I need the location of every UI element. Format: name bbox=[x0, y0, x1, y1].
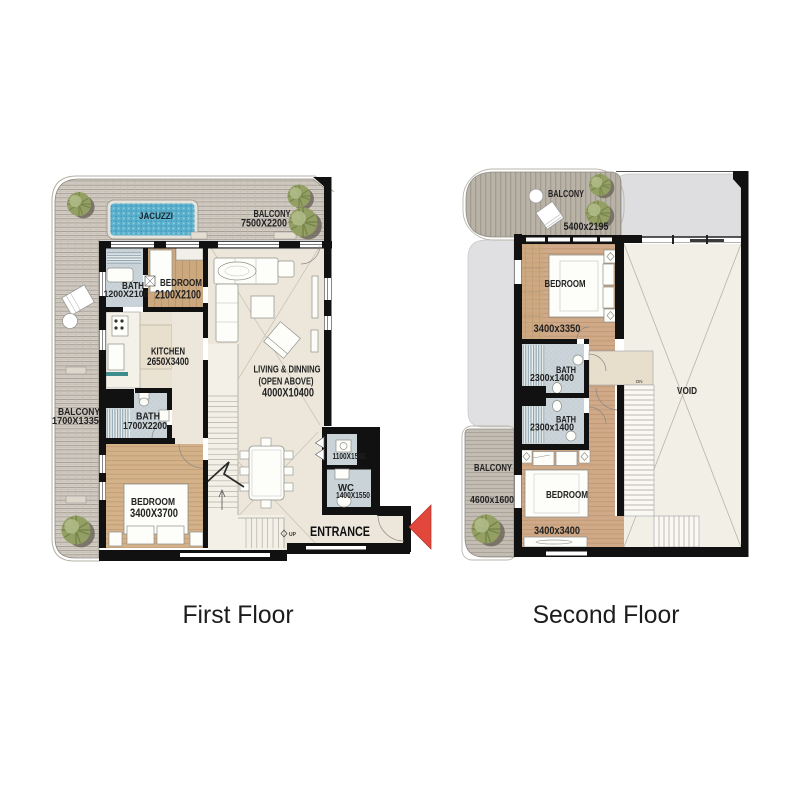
svg-text:Second Floor: Second Floor bbox=[533, 602, 680, 629]
svg-text:7500X2200: 7500X2200 bbox=[241, 218, 287, 230]
svg-text:BEDROOM: BEDROOM bbox=[546, 489, 588, 501]
svg-text:LIVING & DINNING: LIVING & DINNING bbox=[254, 364, 321, 376]
svg-text:2650X3400: 2650X3400 bbox=[147, 356, 189, 368]
svg-text:4600x1600: 4600x1600 bbox=[470, 494, 514, 506]
svg-text:4000X10400: 4000X10400 bbox=[262, 386, 314, 400]
svg-text:2300x1400: 2300x1400 bbox=[530, 372, 574, 384]
svg-text:3400x3400: 3400x3400 bbox=[534, 525, 580, 537]
svg-text:UP: UP bbox=[289, 532, 297, 538]
svg-text:2100X2100: 2100X2100 bbox=[155, 288, 201, 302]
svg-text:3400X3700: 3400X3700 bbox=[130, 506, 178, 520]
svg-text:VOID: VOID bbox=[677, 386, 697, 397]
svg-text:BALCONY: BALCONY bbox=[548, 189, 584, 200]
svg-text:ENTRANCE: ENTRANCE bbox=[310, 523, 370, 539]
svg-text:1100X1550: 1100X1550 bbox=[333, 451, 366, 461]
svg-text:First Floor: First Floor bbox=[182, 602, 293, 629]
svg-text:DN: DN bbox=[636, 379, 643, 384]
svg-text:1700X13350: 1700X13350 bbox=[52, 416, 104, 427]
svg-text:1400X1550: 1400X1550 bbox=[336, 490, 370, 500]
svg-text:BEDROOM: BEDROOM bbox=[545, 278, 586, 290]
svg-text:2300x1400: 2300x1400 bbox=[530, 422, 574, 434]
svg-text:BALCONY: BALCONY bbox=[474, 463, 512, 474]
svg-text:5400x2195: 5400x2195 bbox=[564, 221, 609, 233]
svg-text:3400x3350: 3400x3350 bbox=[534, 323, 581, 335]
svg-text:1700X2200: 1700X2200 bbox=[123, 420, 167, 432]
svg-text:1200X2100: 1200X2100 bbox=[104, 289, 149, 299]
svg-text:JACUZZI: JACUZZI bbox=[139, 211, 173, 221]
